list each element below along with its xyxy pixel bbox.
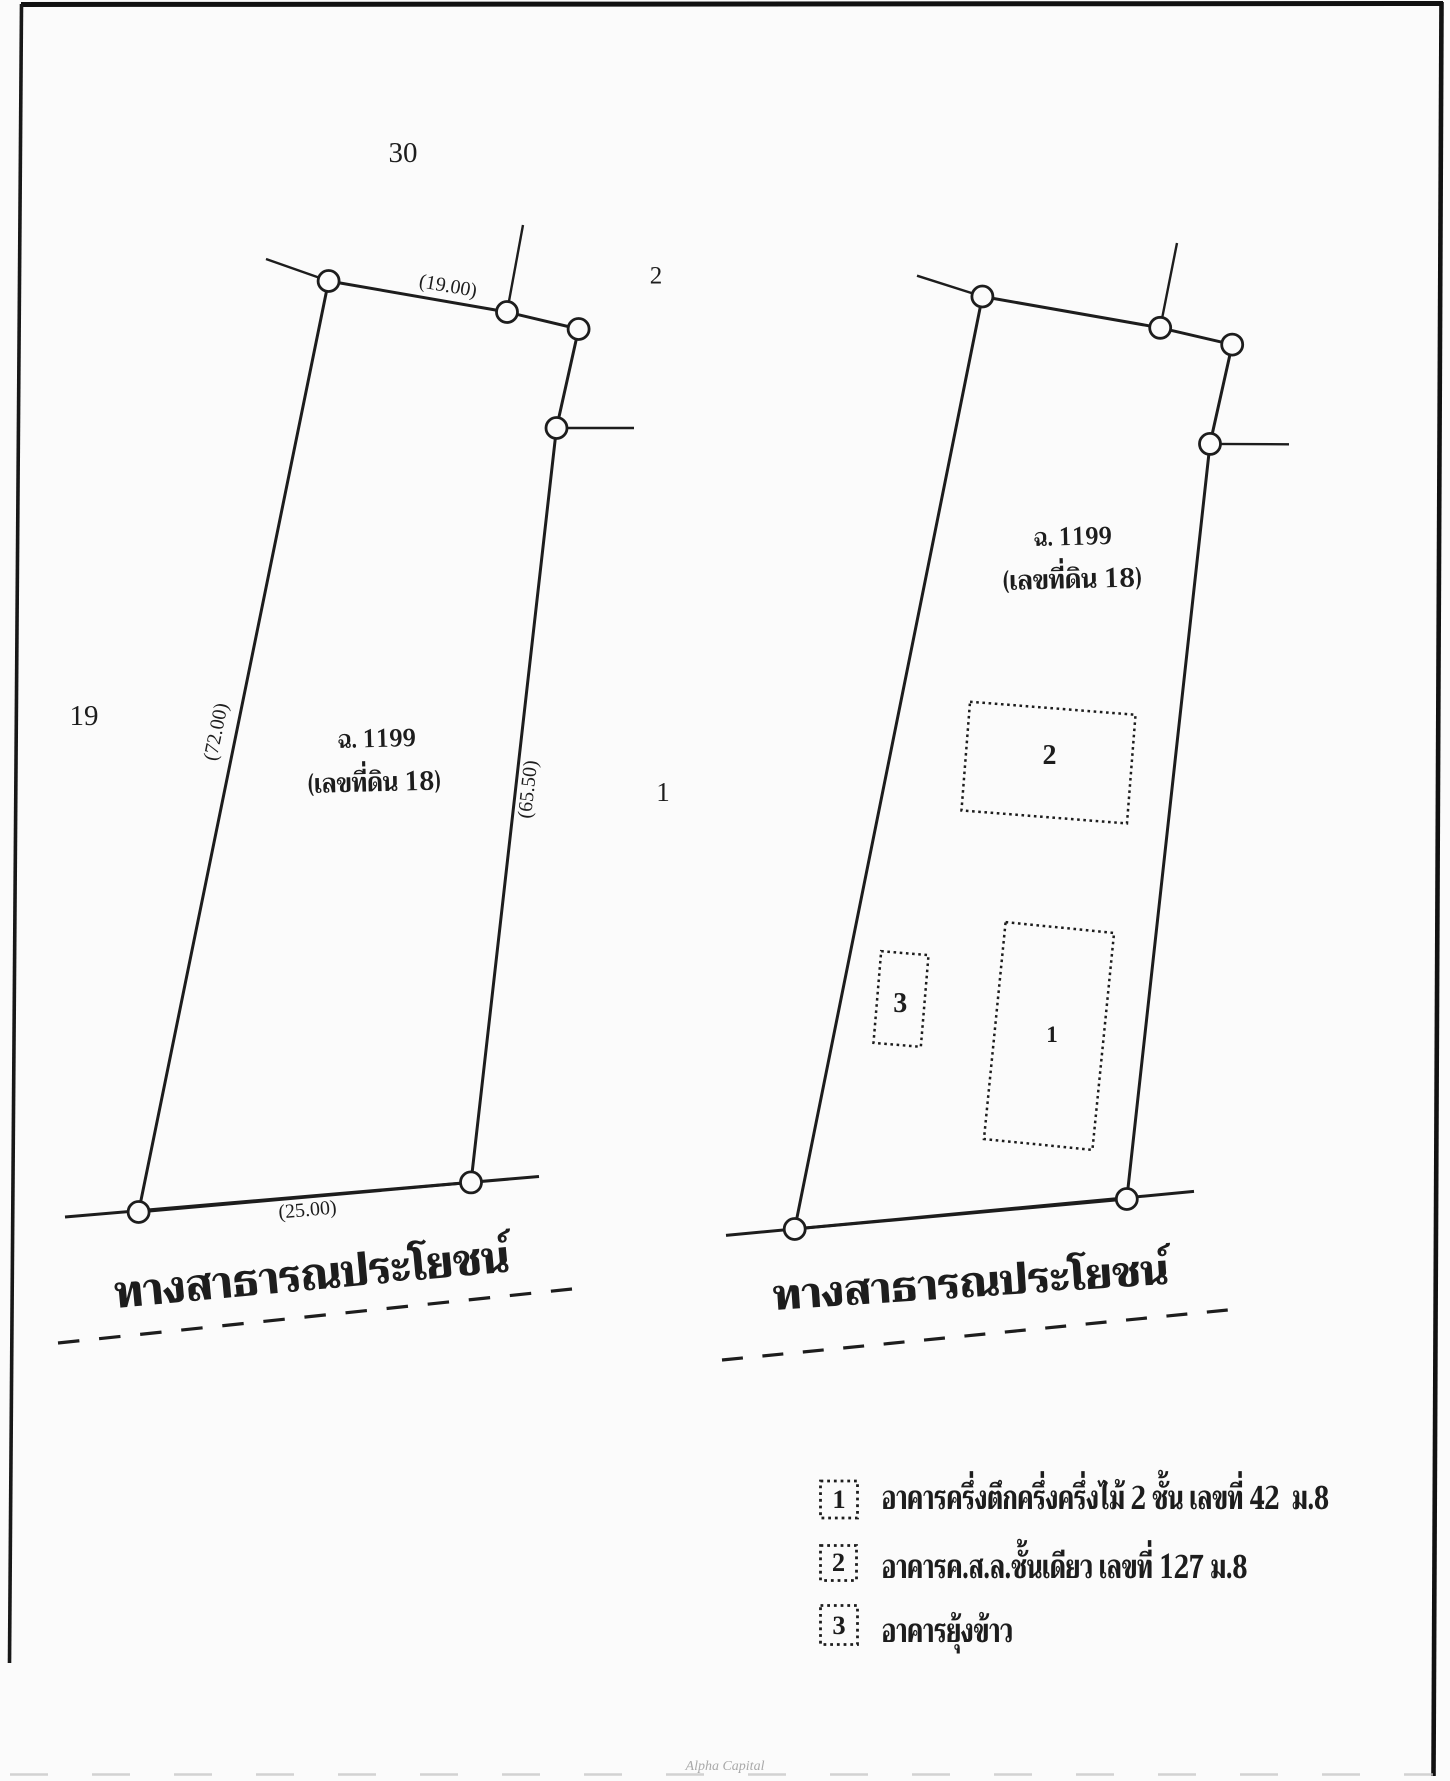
svg-text:3: 3 [893, 988, 907, 1019]
svg-text:19: 19 [70, 700, 99, 732]
svg-text:1: 1 [1046, 1022, 1058, 1047]
svg-text:30: 30 [389, 137, 418, 169]
svg-text:2: 2 [1043, 740, 1057, 771]
svg-text:1: 1 [656, 777, 670, 807]
svg-text:2: 2 [832, 1547, 845, 1577]
svg-text:Alpha Capital: Alpha Capital [685, 1759, 765, 1774]
svg-text:3: 3 [832, 1610, 845, 1640]
svg-text:2: 2 [650, 263, 663, 290]
svg-text:1: 1 [832, 1484, 845, 1514]
